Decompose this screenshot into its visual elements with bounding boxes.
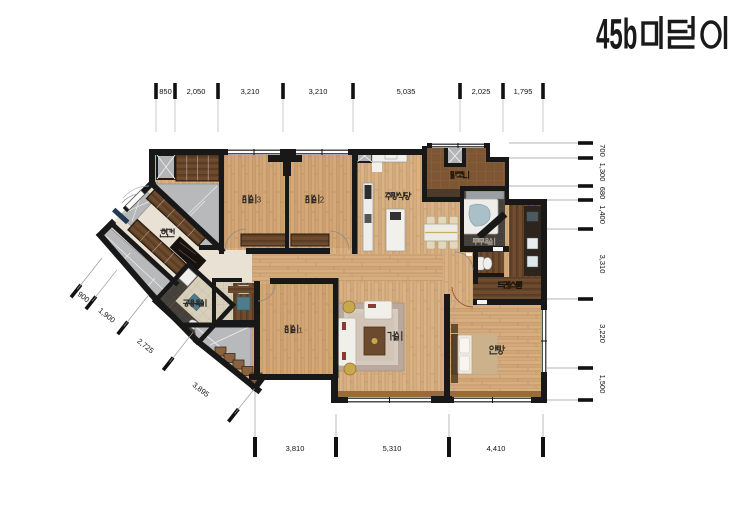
svg-text:700: 700 xyxy=(598,144,607,157)
svg-text:3,310: 3,310 xyxy=(598,255,607,274)
svg-text:1,400: 1,400 xyxy=(598,205,607,224)
svg-text:680: 680 xyxy=(598,187,607,200)
svg-text:1,300: 1,300 xyxy=(598,163,607,182)
svg-text:3,220: 3,220 xyxy=(598,324,607,343)
svg-text:3: 3 xyxy=(257,196,262,205)
svg-text:1: 1 xyxy=(299,326,303,335)
svg-text:2,025: 2,025 xyxy=(472,87,491,96)
svg-text:850: 850 xyxy=(159,87,172,96)
svg-text:3,810: 3,810 xyxy=(286,444,305,453)
svg-text:5,310: 5,310 xyxy=(383,444,402,453)
svg-text:2,050: 2,050 xyxy=(187,87,206,96)
svg-text:45b: 45b xyxy=(596,10,637,58)
svg-text:3,210: 3,210 xyxy=(309,87,328,96)
svg-text:3,210: 3,210 xyxy=(241,87,260,96)
svg-text:4,410: 4,410 xyxy=(487,444,506,453)
svg-text:1,500: 1,500 xyxy=(598,375,607,394)
svg-text:1,795: 1,795 xyxy=(514,87,533,96)
svg-text:5,035: 5,035 xyxy=(397,87,416,96)
svg-text:2: 2 xyxy=(320,196,324,205)
